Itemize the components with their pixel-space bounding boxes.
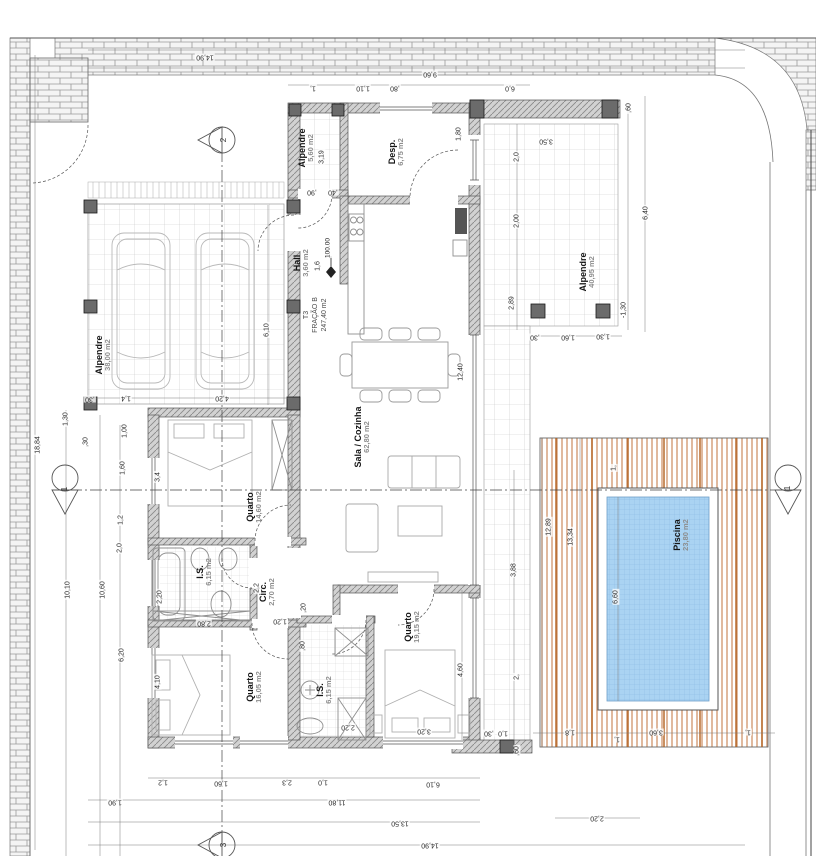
dimension-label: 11,80	[328, 799, 347, 806]
section-marker-top	[198, 127, 235, 153]
dimension-label: 2,20	[589, 815, 605, 822]
dimension-label: 3,60	[648, 729, 664, 736]
dimension-label: 1,	[744, 729, 752, 736]
dimension-label: 4,60	[458, 662, 465, 678]
rear-porch-tiles	[484, 124, 618, 326]
room-label-quarto: Quarto19,15 m2	[403, 611, 421, 643]
terrace-tiles	[484, 326, 530, 742]
dimension-label: ,80	[300, 640, 307, 652]
room-area: 3,60 m2	[302, 249, 310, 277]
dimension-label: 12,40	[458, 362, 465, 382]
dimension-label: 6,40	[643, 205, 650, 221]
room-label-alpendre: Alpendre38,00 m2	[94, 335, 112, 374]
room-area: 40,95 m2	[588, 252, 596, 291]
room-label-sala-cozinha: Sala / Cozinha62,80 m2	[353, 406, 371, 467]
dimension-label: 3,19	[319, 149, 326, 165]
room-area: 14,60 m2	[255, 491, 263, 523]
dimension-label: ,20	[301, 602, 308, 614]
room-area: 16,05 m2	[255, 671, 263, 703]
room-area: 19,15 m2	[413, 611, 421, 643]
dimension-label: ,30	[84, 396, 96, 403]
floor-plan-sheet: Alpendre38,00 m2Alpendre5,60 m2Desp.6,75…	[0, 0, 816, 856]
dimension-label: 3,20	[416, 728, 432, 735]
dimension-label: 1,	[613, 736, 621, 743]
dimension-label: 1,0	[317, 779, 329, 786]
dimension-label: ,80	[389, 85, 401, 92]
dimension-label: 13,50	[390, 820, 410, 827]
bed-2	[152, 655, 230, 735]
dimension-label: 2,2	[254, 582, 261, 594]
sofa-set	[346, 456, 460, 582]
room-label-circ-: Circ.2,70 m2	[258, 578, 276, 606]
dimension-label: 3,88	[511, 562, 518, 578]
fraction-name: FRAÇÃO B	[312, 297, 321, 333]
room-area: 62,80 m2	[363, 406, 371, 467]
section-marker-label: 3	[220, 843, 228, 847]
dimension-label: 1,60	[560, 334, 576, 341]
dimension-label: 1,8	[564, 729, 576, 736]
dimension-label: 6,10	[264, 322, 271, 338]
dimension-label: 1,10	[355, 85, 371, 92]
level-marker-text: 100.00	[325, 238, 332, 258]
level-marker-symbol	[326, 256, 336, 278]
kitchen	[348, 204, 467, 334]
dimension-label: 3,50	[538, 138, 554, 145]
dimension-label: 4,20	[214, 395, 230, 402]
room-label-alpendre: Alpendre40,95 m2	[578, 252, 596, 291]
dimension-label: 2,20	[340, 724, 356, 731]
dimension-label: 13,34	[568, 527, 575, 547]
dimension-label: 10,60	[100, 580, 107, 600]
dimension-label: 1,	[309, 85, 317, 92]
pantry-door-arc	[410, 150, 458, 198]
dimension-label: 1,60	[213, 780, 229, 787]
dimension-label: 1,90	[107, 799, 123, 806]
dimension-label: 6,20	[119, 647, 126, 663]
dining-table	[340, 328, 460, 402]
dimension-label: ,30	[529, 334, 541, 341]
dimension-label: 2,00	[514, 213, 521, 229]
dimension-label: 1,2	[118, 514, 125, 526]
room-area: 6,15 m2	[325, 676, 333, 704]
dimension-label: 10,10	[65, 580, 72, 600]
dimension-label: 1,	[611, 464, 618, 472]
dimension-label: -1,30	[621, 301, 628, 319]
section-marker-label: 1	[61, 487, 69, 491]
dimension-label: ,30	[483, 730, 495, 737]
bed-3	[370, 650, 470, 738]
dimension-label: 18,84	[35, 435, 42, 455]
fraction-label: T3 FRAÇÃO B 247,40 m2	[303, 297, 329, 333]
bedroom2-door-arc	[252, 623, 288, 659]
dimension-label: 12,89	[546, 517, 553, 537]
dimension-label: ,60	[626, 102, 633, 114]
room-label-desp-: Desp.6,75 m2	[387, 138, 405, 166]
room-label-quarto: Quarto14,60 m2	[245, 491, 263, 523]
gate-swing-arc	[33, 125, 88, 183]
dimension-label: 1,20	[272, 618, 288, 625]
room-label-quarto: Quarto16,05 m2	[245, 671, 263, 703]
dimension-label: 2,0	[514, 151, 521, 163]
room-area: 6,15 m2	[205, 558, 213, 586]
dimension-label: 1,80	[456, 126, 463, 142]
dimension-label: 2,20	[157, 589, 164, 605]
dimension-label: 14,90	[420, 842, 440, 849]
dimension-label: 6,0	[504, 85, 516, 92]
dimension-label: 1,2	[157, 779, 169, 786]
room-label-alpendre: Alpendre5,60 m2	[297, 128, 315, 167]
dimension-label: ,90	[306, 189, 318, 196]
room-label-piscina: Piscina23,80 m2	[672, 519, 690, 551]
section-marker-bottom	[198, 832, 235, 856]
dimension-label: 9,60	[422, 71, 438, 78]
dimension-label: 1,0	[497, 730, 509, 737]
section-marker-label: 2	[220, 138, 228, 142]
front-door-arc	[298, 194, 332, 228]
room-area: 23,80 m2	[682, 519, 690, 551]
front-walkway	[88, 182, 284, 198]
room-area: 2,70 m2	[268, 578, 276, 606]
dimension-label: ,60	[514, 745, 521, 757]
room-area: 38,00 m2	[104, 335, 112, 374]
dimension-label: ,30	[83, 436, 90, 448]
fraction-type: T3	[303, 297, 312, 333]
bed-1	[168, 420, 252, 506]
section-marker-label: 1	[784, 486, 792, 490]
fraction-area: 247,40 m2	[320, 297, 329, 333]
room-area: 5,60 m2	[307, 128, 315, 167]
dimension-label: 2,3	[281, 779, 293, 786]
room-area: 6,75 m2	[397, 138, 405, 166]
dimension-label: 6,60	[613, 589, 620, 605]
room-label-i-s-: I.S.6,15 m2	[315, 676, 333, 704]
dimension-label: 1,60	[120, 460, 127, 476]
dimension-label: 2,	[514, 673, 521, 681]
dimension-label: 3,4	[155, 471, 162, 483]
dimension-label: ,40	[327, 189, 339, 196]
room-label-i-s-: I.S.6,15 m2	[195, 558, 213, 586]
dimension-label: 2,80	[196, 620, 212, 627]
dimension-label: 2,89	[509, 295, 516, 311]
room-label-hall: Hall3,60 m2	[292, 249, 310, 277]
dimension-label: 4,10	[155, 674, 162, 690]
dimension-label: 6,10	[425, 781, 441, 788]
dimension-label: 2,0	[117, 542, 124, 554]
pool-deck	[540, 438, 768, 747]
pool-water	[607, 497, 709, 701]
dimension-label: 1,00	[122, 423, 129, 439]
dimension-label: 14,90	[195, 54, 215, 61]
dimension-label: 1,30	[595, 333, 611, 340]
dimension-label: 1,6	[315, 260, 322, 272]
dimension-label: 1,30	[63, 411, 70, 427]
dimension-label: 1,4	[120, 395, 132, 402]
